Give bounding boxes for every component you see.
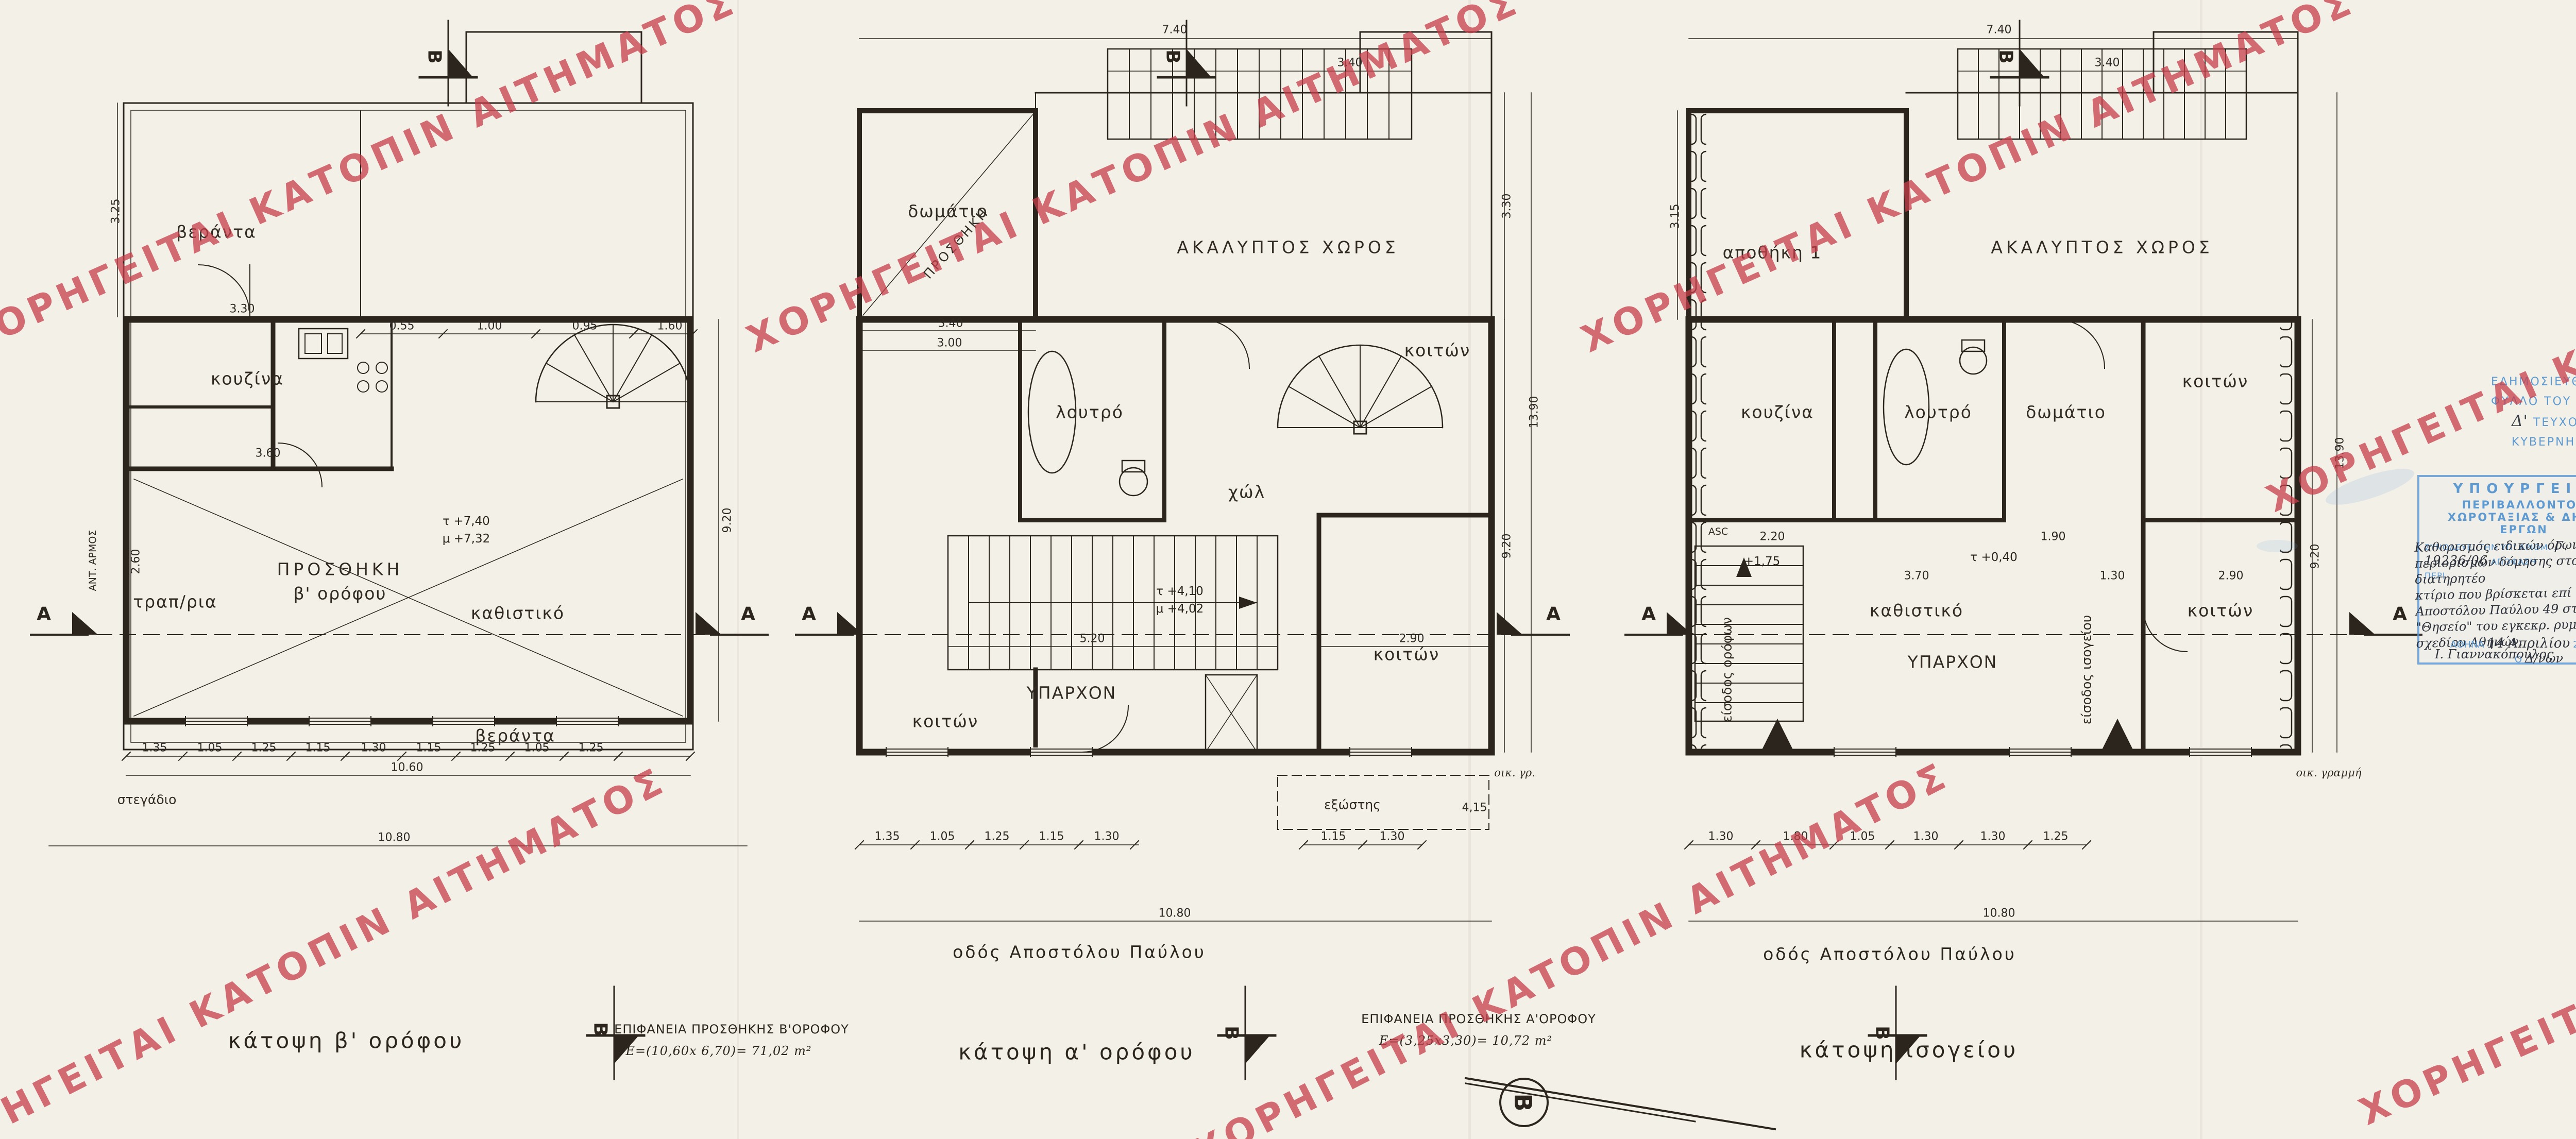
dimension: 2.20: [1760, 531, 1785, 543]
plan2-section-marks: [796, 21, 1569, 1079]
dimension: 1.05: [197, 742, 223, 755]
room-label: κοιτών: [912, 711, 979, 732]
room-label: κοιτών: [1404, 341, 1471, 361]
dimension: 1.25: [2043, 830, 2069, 843]
dimension: 3.15: [1669, 204, 1682, 229]
room-label: καθιστικό: [1870, 601, 1963, 621]
dimension: 1.30: [361, 742, 386, 755]
section-letter-b: B: [1995, 49, 2016, 63]
dimension: 1.35: [875, 830, 900, 843]
ministry-approval-stamp: ΥΠΟΥΡΓΕΙΟ ΠΕΡΙΒΑΛΛΟΝΤΟΣ ΧΩΡΟΤΑΞΙΑΣ & ΔΗΜ…: [2417, 475, 2576, 665]
room-label: λουτρό: [1904, 402, 1972, 422]
room-label: είσοδος ισογείου: [2079, 615, 2094, 724]
dimension: 1.15: [306, 742, 331, 755]
drawing-sheet: βεράντα κουζίνα τραπ/ρια ΠΡΟΣΘΗΚΗ β' ορό…: [0, 0, 2576, 1139]
plan2-dimlines: [855, 39, 1531, 921]
room-label: κοιτών: [1374, 644, 1440, 665]
room-label: κοιτών: [2182, 371, 2249, 392]
stamp-title: ΥΠΟΥΡΓΕΙΟ: [2425, 481, 2576, 497]
level-mark: τ +7,40: [443, 515, 490, 528]
level-mark: +1,75: [1744, 555, 1780, 568]
section-letter-a: A: [1641, 604, 1656, 625]
area-note: ΕΠΙΦΑΝΕΙΑ ΠΡΟΣΘΗΚΗΣ Β'ΟΡΟΦΟΥ: [614, 1022, 849, 1036]
joint-label: ΑΝΤ. ΑΡΜΟΣ: [87, 530, 98, 591]
level-mark: μ +7,32: [443, 532, 490, 546]
dimension: 9.20: [1501, 534, 1514, 559]
dimension: 0.55: [389, 320, 415, 333]
room-label: καθιστικό: [471, 603, 565, 623]
room-label: ΠΡΟΣΘΗΚΗ: [277, 559, 403, 580]
dimension: 5.20: [1080, 633, 1105, 645]
dimension: 3.60: [256, 447, 281, 460]
room-label: ΑΚΑΛΥΠΤΟΣ ΧΩΡΟΣ: [1177, 237, 1399, 258]
dimension: 1.15: [416, 742, 442, 755]
dimension: 4,15: [1462, 802, 1487, 814]
dimension: 1.30: [1708, 830, 1734, 843]
north-letter: Β: [1509, 1093, 1537, 1111]
dimension: 7.40: [1987, 24, 2012, 37]
room-label: κουζίνα: [211, 369, 284, 389]
plan1-dimlines: [49, 103, 747, 846]
dimension: 1.25: [251, 742, 277, 755]
dimension: 7.40: [1162, 24, 1188, 37]
room-label: είσοδος ορόφων: [1720, 617, 1735, 722]
dimension: 1.30: [1980, 830, 2006, 843]
stamp-handwritten-body: Καθορισμός ειδικών όρων και περιορισμών …: [2414, 536, 2576, 652]
dimension: 3.40: [938, 317, 963, 330]
area-note: Ε=(10,60x 6,70)= 71,02 m²: [625, 1044, 811, 1058]
room-label: χώλ: [1228, 482, 1265, 502]
fek-line3: ΤΗΣ 7 Ιουνίου 2006: [2491, 452, 2576, 473]
room-label: κοιτών: [2188, 601, 2254, 621]
dimension: 10.80: [1983, 907, 2015, 920]
dimension: 10.80: [378, 831, 411, 844]
section-letter-a: A: [741, 604, 755, 625]
level-mark: μ +4,02: [1156, 602, 1204, 616]
dimension: 1.35: [142, 742, 167, 755]
dimension: 10.60: [391, 761, 423, 774]
room-label: λουτρό: [1056, 402, 1124, 422]
level-mark: τ +0,40: [1970, 551, 2018, 564]
dimension: 1.60: [657, 320, 683, 333]
dimension: 1.30: [1094, 830, 1120, 843]
stamp-body-line: περιορισμών δόμησης στο διατηρητέο: [2415, 552, 2576, 588]
section-letter-b: B: [590, 1022, 611, 1036]
stamp-subtitle: ΠΕΡΙΒΑΛΛΟΝΤΟΣ ΧΩΡΟΤΑΞΙΑΣ & ΔΗΜ. ΕΡΓΩΝ: [2425, 499, 2576, 536]
dimension: 3.70: [1904, 570, 1929, 583]
dimension: 3.00: [937, 337, 962, 350]
dimension: 3.30: [230, 303, 255, 316]
dimension: 1.25: [985, 830, 1010, 843]
room-label: ΥΠΑΡΧΟΝ: [1908, 652, 1998, 672]
dimension: 2.60: [130, 549, 143, 574]
dimension: 1.30: [1913, 830, 1939, 843]
dimension: 3.30: [1501, 194, 1514, 219]
room-label: ΥΠΑΡΧΟΝ: [1027, 683, 1117, 703]
dimension: 1.15: [1039, 830, 1064, 843]
building-line-label: οικ. γρ.: [1494, 767, 1535, 779]
dimension: 3.25: [110, 199, 123, 224]
section-letter-b: B: [1162, 49, 1183, 63]
street-label: οδός Αποστόλου Παύλου: [953, 942, 1206, 962]
level-mark: τ +4,10: [1156, 585, 1204, 598]
section-letter-a: A: [1546, 604, 1561, 625]
dimension: 1.30: [1380, 830, 1405, 843]
dimension: 1.05: [524, 742, 550, 755]
plan-caption: κάτοψη β' ορόφου: [228, 1028, 465, 1053]
section-letter-b: B: [1221, 1026, 1242, 1040]
dimension: 10.80: [1159, 907, 1191, 920]
dimension: 9.20: [721, 508, 734, 533]
room-label: κουζίνα: [1741, 402, 1814, 422]
dimension: 0.95: [572, 320, 598, 333]
room-label: εξώστης: [1324, 797, 1381, 812]
plan2-walls: [796, 21, 1569, 1079]
section-letter-a: A: [37, 604, 51, 625]
street-label: οδός Αποστόλου Παύλου: [1763, 944, 2016, 964]
dimension: 1.30: [2100, 570, 2125, 583]
stamp-signature: Ι. Γιαννακόπουλος: [2435, 647, 2554, 661]
room-label: ASC: [1708, 526, 1728, 537]
stamp-year: 200: [2573, 639, 2576, 650]
plan3-section-marks: [1625, 21, 2421, 1079]
section-letter-a: A: [802, 604, 816, 625]
room-label: δωμάτιο: [2026, 402, 2106, 422]
building-line-label: οικ. γραμμή: [2296, 767, 2362, 779]
room-label: β' ορόφου: [293, 584, 386, 604]
room-label: ΑΚΑΛΥΠΤΟΣ ΧΩΡΟΣ: [1991, 237, 2213, 258]
dimension: 1.90: [2041, 531, 2066, 543]
room-label: στεγάδιο: [117, 792, 177, 807]
plan-caption: κάτοψη α' ορόφου: [958, 1040, 1195, 1065]
dimension: 1.25: [579, 742, 604, 755]
plan3-walls: [1625, 21, 2421, 1079]
dimension: 1.15: [1321, 830, 1346, 843]
dimension: 2.90: [2218, 570, 2244, 583]
dimension: 2.90: [1399, 633, 1425, 645]
dimension: 9.20: [2309, 544, 2322, 569]
section-letter-b: B: [424, 49, 445, 63]
dimension: 1.05: [930, 830, 955, 843]
plan-caption: κάτοψη ισογείου: [1800, 1038, 2018, 1063]
dimension: 13.90: [1528, 396, 1541, 429]
dimension: 3.40: [2095, 57, 2120, 70]
section-letter-a: A: [2393, 604, 2407, 625]
room-label: τραπ/ρια: [133, 592, 217, 612]
dimension: 1.25: [470, 742, 496, 755]
dimension: 1.00: [477, 320, 502, 333]
